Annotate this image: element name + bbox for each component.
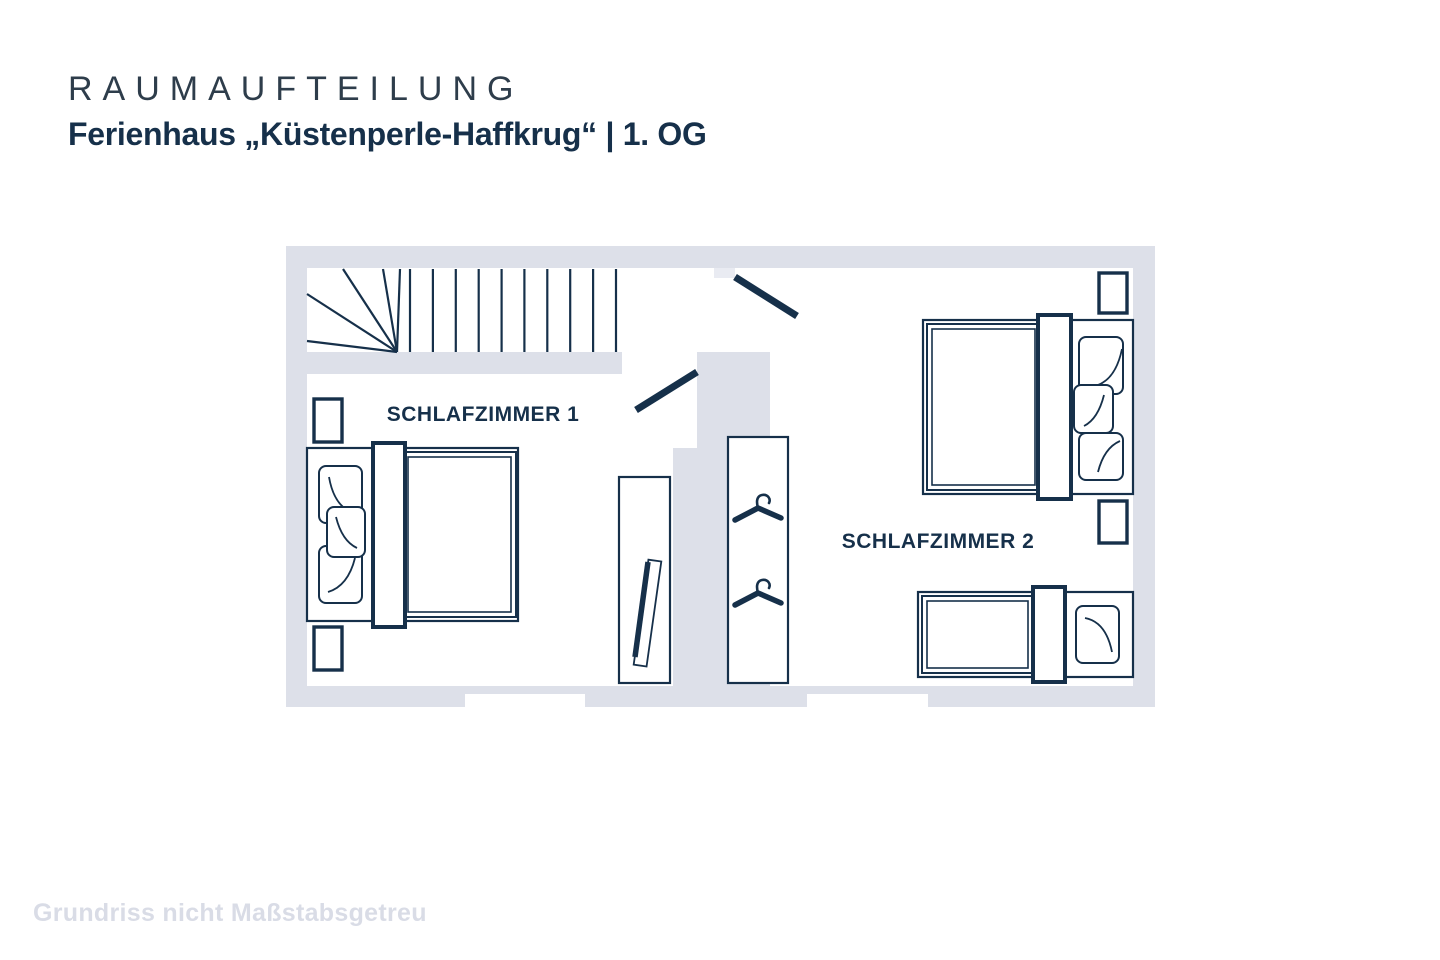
nightstand — [1099, 501, 1127, 543]
mattress — [922, 596, 1033, 673]
nightstand — [1099, 273, 1127, 313]
mattress — [927, 324, 1040, 490]
double-bed-2 — [923, 315, 1133, 499]
room-label-schlafzimmer-2: SCHLAFZIMMER 2 — [842, 530, 1035, 553]
double-bed-1 — [307, 443, 518, 627]
single-bed — [918, 587, 1133, 682]
headboard-bar — [1038, 315, 1071, 499]
door-frame-stub — [714, 268, 735, 278]
headboard-bar — [373, 443, 405, 627]
window-1 — [465, 694, 585, 707]
pillow — [1076, 606, 1119, 663]
wardrobe — [728, 437, 788, 683]
floor-plan: SCHLAFZIMMER 1 SCHLAFZIMMER 2 — [0, 0, 1440, 960]
leaning-board-cabinet — [619, 477, 670, 683]
room-label-schlafzimmer-1: SCHLAFZIMMER 1 — [387, 403, 580, 426]
nightstand — [314, 627, 342, 670]
nightstand — [314, 399, 342, 442]
page: { "header": { "title": "RAUMAUFTEILUNG",… — [0, 0, 1440, 960]
disclaimer-text: Grundriss nicht Maßstabsgetreu — [33, 899, 427, 928]
window-2 — [807, 694, 928, 707]
mattress — [403, 452, 516, 617]
headboard-bar — [1033, 587, 1065, 682]
